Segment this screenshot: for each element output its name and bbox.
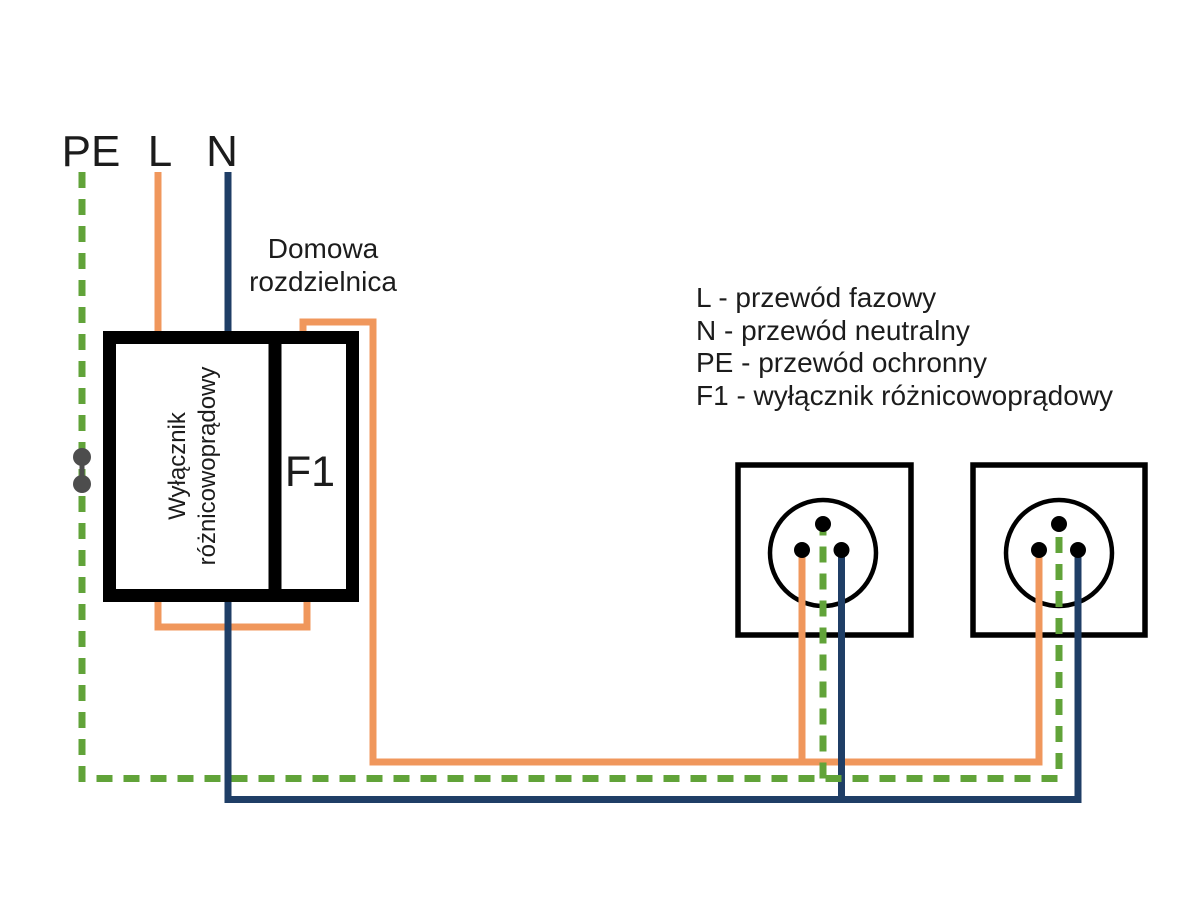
diagram-canvas: PE L N Domowa rozdzielnica Wyłącznik róż… [0,0,1200,900]
breaker-f1-label: F1 [285,448,335,496]
pe-feed-label: PE [62,127,121,176]
socket-1-neutral-pin [834,542,850,558]
board-title-line2: rozdzielnica [249,266,397,297]
legend-line-phase: L - przewód fazowy [696,282,936,313]
board-title-line1: Domowa [268,233,379,264]
legend: L - przewód fazowy N - przewód neutralny… [696,282,1113,411]
rcd-label-line1: Wyłącznik [164,411,191,520]
n-feed-label: N [206,127,238,176]
legend-line-neutral: N - przewód neutralny [696,315,970,346]
pe-disconnect-dot-top [73,448,91,466]
socket-2-pe-pin [1051,516,1067,532]
socket-2-neutral-pin [1070,542,1086,558]
socket-2-phase-pin [1031,542,1047,558]
legend-line-breaker: F1 - wyłącznik różnicowoprądowy [696,380,1113,411]
socket-1-phase-pin [794,542,810,558]
wiring-diagram: PE L N Domowa rozdzielnica Wyłącznik róż… [0,0,1200,900]
legend-line-protective: PE - przewód ochronny [696,347,987,378]
pe-disconnect-dot-bottom [73,475,91,493]
socket-1-pe-pin [815,516,831,532]
pe-disconnect-connector [73,448,91,493]
l-feed-label: L [148,127,172,176]
rcd-label-line2: różnicowoprądowy [194,367,221,566]
